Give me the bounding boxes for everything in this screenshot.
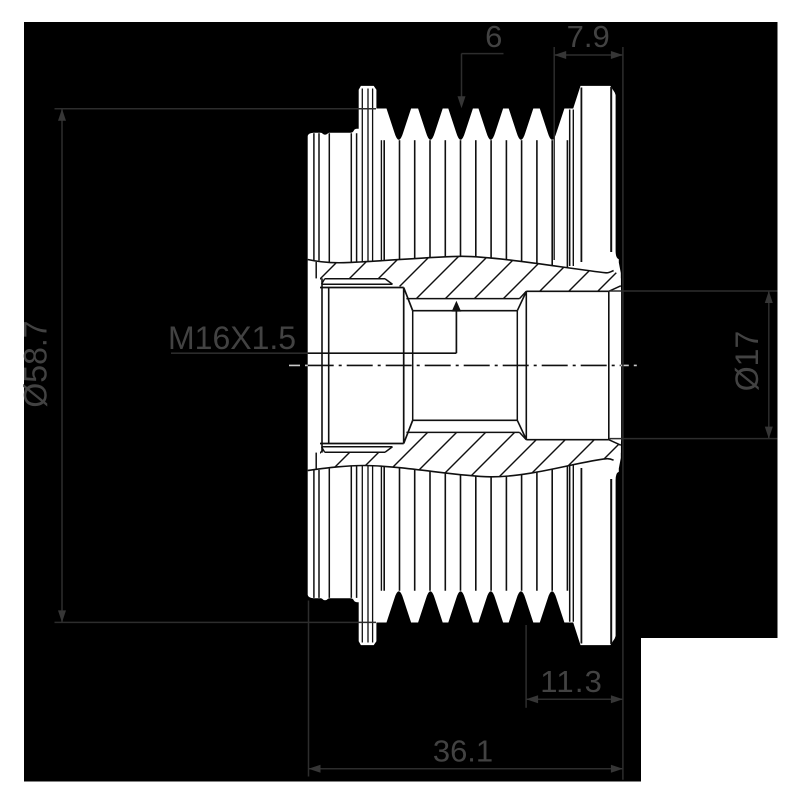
svg-text:36.1: 36.1	[433, 734, 493, 769]
svg-text:M16X1.5: M16X1.5	[168, 320, 296, 356]
svg-text:6: 6	[485, 19, 502, 54]
svg-text:Ø17: Ø17	[729, 331, 765, 391]
svg-text:11.3: 11.3	[540, 664, 603, 699]
svg-text:Ø58.7: Ø58.7	[18, 320, 54, 407]
svg-text:7.9: 7.9	[567, 19, 610, 54]
